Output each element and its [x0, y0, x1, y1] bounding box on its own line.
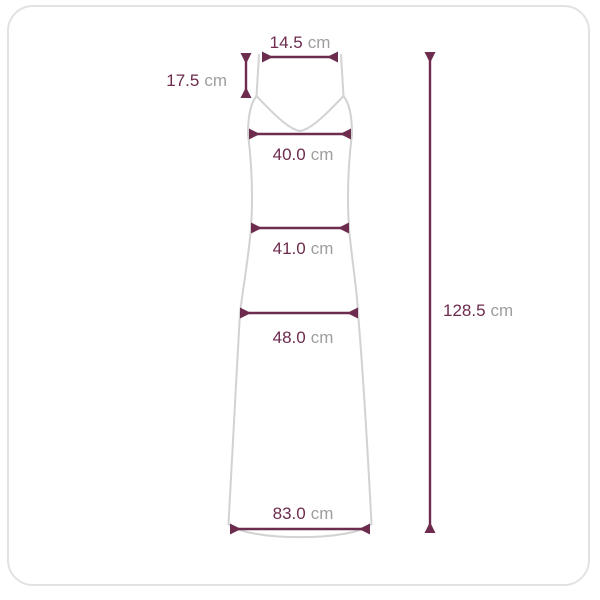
- dress-strap-right: [341, 55, 344, 96]
- label-hem-width: 83.0cm: [253, 504, 353, 524]
- measurement-unit: cm: [308, 33, 331, 52]
- label-hip-width: 48.0cm: [253, 328, 353, 348]
- label-total-length: 128.5cm: [443, 301, 513, 321]
- measurement-value: 40.0: [273, 145, 306, 164]
- measurement-unit: cm: [311, 504, 334, 523]
- label-bust-width: 40.0cm: [253, 145, 353, 165]
- measurement-value: 128.5: [443, 301, 486, 320]
- dimension-total-length: [425, 52, 436, 533]
- label-waist-width: 41.0cm: [253, 239, 353, 259]
- measurement-unit: cm: [311, 328, 334, 347]
- measurement-unit: cm: [204, 71, 227, 90]
- measurement-value: 48.0: [273, 328, 306, 347]
- measurement-value: 14.5: [270, 33, 303, 52]
- dress-outline: [229, 55, 372, 537]
- measurement-unit: cm: [311, 145, 334, 164]
- measurement-unit: cm: [311, 239, 334, 258]
- size-diagram: 14.5cm 17.5cm 40.0cm 41.0cm 48.0cm 83.0c…: [0, 0, 600, 600]
- measurement-value: 41.0: [273, 239, 306, 258]
- dimension-strap-length: [241, 53, 252, 98]
- label-top-width: 14.5cm: [250, 33, 350, 53]
- label-strap-length: 17.5cm: [107, 71, 227, 91]
- measurement-value: 17.5: [166, 71, 199, 90]
- dimension-top-width: [262, 52, 338, 63]
- measurement-value: 83.0: [273, 504, 306, 523]
- dress-strap-left: [257, 55, 260, 96]
- measurement-unit: cm: [491, 301, 514, 320]
